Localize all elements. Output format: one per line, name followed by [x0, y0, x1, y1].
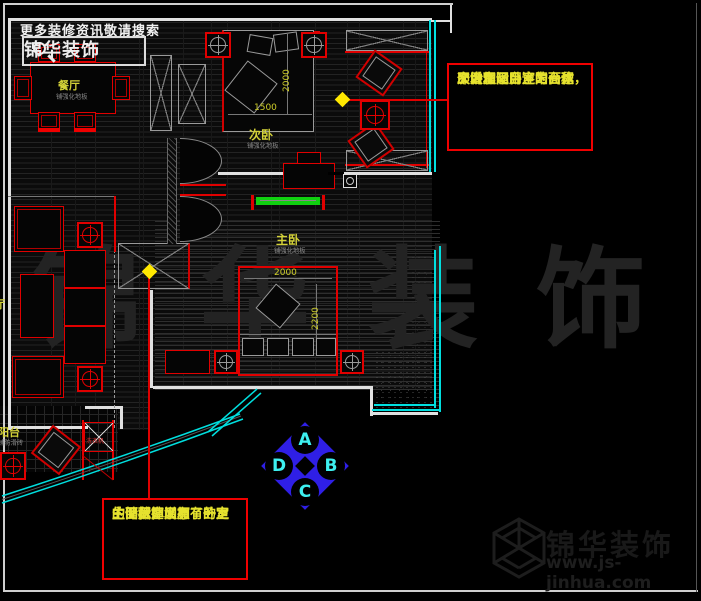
- window-south-2: [372, 409, 441, 411]
- magnifier-icon: [33, 42, 46, 55]
- hall-dresser-top: [297, 152, 321, 164]
- footer-cube-logo-icon: [490, 516, 548, 580]
- entry-wall-hatch: [167, 138, 177, 244]
- bedm-headline: [240, 334, 336, 335]
- annotation-line: 的储藏空间。: [112, 505, 190, 524]
- wall-master-south: [153, 386, 373, 389]
- door-leaf-lower: [180, 194, 226, 196]
- compass-letter-c: C: [291, 478, 319, 506]
- sofa-cushion-line: [65, 287, 105, 289]
- floor-note-bedroom2: 铺强化地板: [247, 141, 279, 150]
- nightstand-light-icon: [214, 350, 238, 374]
- annotation-line: 个大空间: [457, 70, 509, 89]
- wall-notch-v: [450, 3, 452, 33]
- leader-line-2: [148, 278, 150, 498]
- wall-step-v: [120, 406, 123, 429]
- wall-left: [8, 18, 11, 430]
- bed2-pillow: [247, 34, 274, 56]
- sheet-border-right: [696, 3, 697, 592]
- dim-bedm-width: 2000: [274, 268, 297, 278]
- sheet-border-top: [3, 3, 453, 5]
- tv-screen: [256, 197, 320, 205]
- orientation-compass: A B C D: [265, 426, 345, 506]
- annotation-master-note: 主卧拆掉了原有的卫 生间，即增加了卧室 的面积，又有了一定 的储藏空间。: [102, 498, 248, 580]
- ceiling-light-icon: [301, 32, 327, 58]
- annotation-balcony-note: 次卧和阳台连为一体， 即增加了卧室的面积 又合理运用了阳台这 个大空间: [447, 63, 593, 151]
- accent-corridor: [114, 196, 116, 252]
- cad-floorplan-screenshot: 锦华装饰 餐厅 铺强化地板 1: [0, 0, 701, 601]
- bed-master: [238, 266, 338, 376]
- dim-bed2-length: 2000: [282, 69, 292, 92]
- master-bench: [165, 350, 210, 374]
- hall-dresser: [283, 163, 335, 189]
- wall-step-h: [85, 406, 123, 409]
- dim-line: [228, 114, 312, 115]
- dim-bed2-width: 1500: [254, 103, 277, 113]
- coffee-table: [20, 274, 54, 338]
- wall-master-step-h: [372, 412, 438, 415]
- wall-dining-south: [8, 196, 114, 197]
- balcony-light-icon: [0, 452, 26, 480]
- brand-search-box: 锦华装饰: [22, 36, 146, 66]
- dim-line: [244, 278, 332, 279]
- tv-bracket: [322, 195, 325, 210]
- wardrobe-hatch: [178, 64, 206, 124]
- compass-letter-a: A: [291, 426, 319, 454]
- tv-screen-line: [260, 200, 316, 201]
- wardrobe-hatch: [150, 55, 172, 131]
- bedm-pillow: [292, 338, 314, 356]
- door-leaf-upper: [180, 184, 226, 186]
- sofa: [64, 250, 106, 364]
- sofa-cushion-line: [65, 325, 105, 327]
- dining-chair: [112, 76, 130, 100]
- dining-chair: [14, 76, 32, 100]
- accent-cabinet-top: [345, 51, 429, 53]
- bedm-pillow: [316, 338, 336, 356]
- bed2-pillow: [273, 31, 299, 52]
- room-label-dining: 餐厅: [58, 77, 80, 93]
- window-southeast-1: [434, 250, 436, 408]
- window-southeast-2: [439, 246, 441, 412]
- dim-bedm-length: 2200: [311, 307, 321, 330]
- cabinet-hatch-top: [346, 30, 428, 51]
- floor-note-dining: 铺强化地板: [56, 92, 88, 101]
- washing-machine-label: 洗衣机: [86, 436, 104, 445]
- floor-note-master: 铺强化地板: [274, 246, 306, 255]
- wall-master-west: [150, 290, 153, 388]
- armchair: [12, 356, 64, 398]
- compass-letter-d: D: [265, 452, 293, 480]
- compass-letter-b: B: [317, 452, 345, 480]
- column-box: [343, 174, 357, 188]
- column-circle: [346, 177, 354, 185]
- ceiling-light-icon: [205, 32, 231, 58]
- armchair: [14, 206, 64, 252]
- floor-note-balcony: 铺防滑砖: [0, 438, 23, 447]
- tv-bracket: [251, 195, 254, 210]
- wall-door-gap: [328, 172, 344, 175]
- leader-line-1: [348, 99, 447, 101]
- chair-mark: [38, 128, 60, 132]
- window-south-1: [374, 404, 436, 406]
- footer-website: www.js-jinhua.com: [546, 553, 701, 593]
- floor-light-icon: [77, 366, 103, 392]
- wall-living-south: [8, 426, 88, 429]
- chair-mark: [74, 128, 96, 132]
- room-label-living-clipped: 厅: [0, 296, 5, 312]
- balcony-table-light-icon: [360, 100, 390, 130]
- window-east-1: [429, 20, 431, 172]
- window-east-2: [434, 20, 436, 172]
- nightstand-light-icon: [340, 350, 364, 374]
- master-closet-hatch: [118, 243, 190, 289]
- bedm-pillow: [242, 338, 264, 356]
- bedm-pillow: [267, 338, 289, 356]
- floor-light-icon: [77, 222, 103, 248]
